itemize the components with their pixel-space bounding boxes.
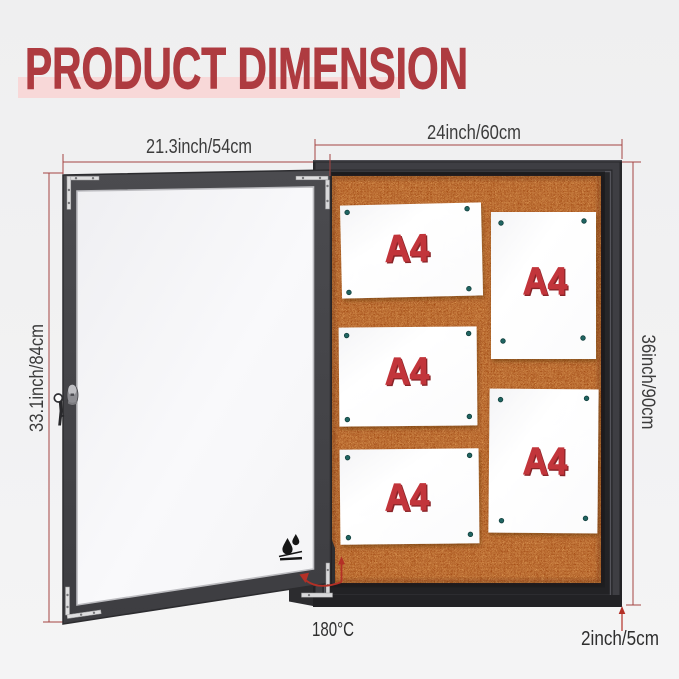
svg-text:36inch/90cm: 36inch/90cm: [637, 335, 658, 430]
svg-text:24inch/60cm: 24inch/60cm: [427, 122, 521, 144]
svg-text:33.1inch/84cm: 33.1inch/84cm: [27, 324, 48, 432]
svg-text:180°C: 180°C: [312, 619, 354, 641]
svg-text:2inch/5cm: 2inch/5cm: [581, 628, 659, 650]
svg-text:PRODUCT DIMENSION: PRODUCT DIMENSION: [25, 37, 468, 102]
svg-text:21.3inch/54cm: 21.3inch/54cm: [146, 136, 252, 158]
